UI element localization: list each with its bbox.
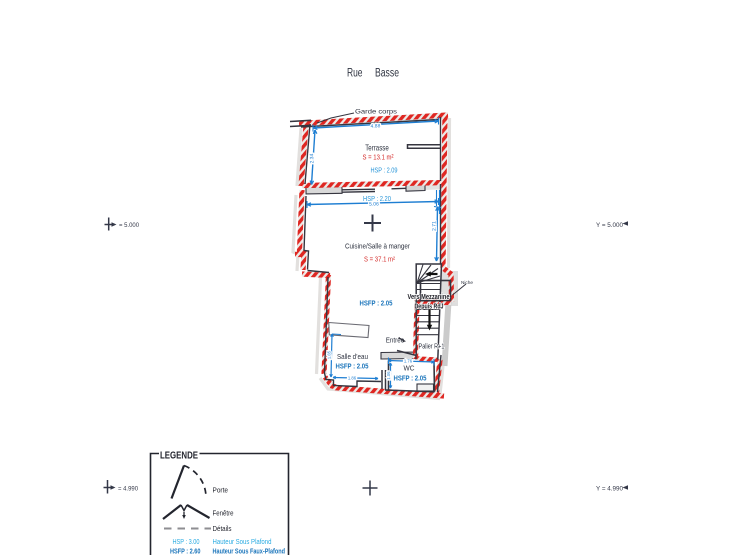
svg-text:Hauteur Sous Faux-Plafond: Hauteur Sous Faux-Plafond xyxy=(213,549,286,555)
svg-text:= 4.990: = 4.990 xyxy=(118,487,139,493)
svg-text:HSP : 2.09: HSP : 2.09 xyxy=(371,166,398,175)
svg-text:Terrasse: Terrasse xyxy=(365,144,389,153)
svg-text:Garde corps: Garde corps xyxy=(355,109,398,116)
svg-text:Y = 5.000: Y = 5.000 xyxy=(596,223,624,229)
svg-text:Rue: Rue xyxy=(347,68,363,80)
svg-text:Fenêtre: Fenêtre xyxy=(213,509,234,518)
svg-text:HSFP : 2.05: HSFP : 2.05 xyxy=(394,374,427,383)
svg-text:Hauteur Sous Plafond: Hauteur Sous Plafond xyxy=(213,539,272,546)
svg-text:HSP : 3.00: HSP : 3.00 xyxy=(173,539,200,546)
svg-text:S = 37.1 m²: S = 37.1 m² xyxy=(364,255,395,264)
svg-text:Entrée: Entrée xyxy=(386,336,405,345)
svg-text:WC: WC xyxy=(404,364,415,373)
svg-text:S = 13.1 m²: S = 13.1 m² xyxy=(363,153,394,162)
svg-text:= 5.000: = 5.000 xyxy=(119,223,140,229)
svg-text:LEGENDE: LEGENDE xyxy=(160,450,198,462)
svg-text:Porte: Porte xyxy=(213,486,229,495)
svg-text:Cuisine/Salle à manger: Cuisine/Salle à manger xyxy=(345,242,410,251)
svg-text:Y = 4.990: Y = 4.990 xyxy=(596,487,624,493)
svg-text:1.85: 1.85 xyxy=(326,350,331,359)
svg-text:2.34: 2.34 xyxy=(309,153,316,163)
svg-text:HSFP : 2.05: HSFP : 2.05 xyxy=(360,299,394,308)
svg-text:HSFP : 2.60: HSFP : 2.60 xyxy=(170,549,201,555)
svg-text:HSFP : 2.05: HSFP : 2.05 xyxy=(336,362,369,371)
svg-text:Détails: Détails xyxy=(213,524,232,533)
svg-text:Basse: Basse xyxy=(375,68,399,80)
svg-text:Palier R+1: Palier R+1 xyxy=(419,342,445,351)
svg-text:Vers Mezzanine: Vers Mezzanine xyxy=(408,294,450,301)
svg-text:Niche: Niche xyxy=(461,280,473,286)
svg-text:HSP : 2.20: HSP : 2.20 xyxy=(363,194,391,203)
svg-text:4.88: 4.88 xyxy=(370,123,380,130)
svg-text:1.86: 1.86 xyxy=(348,376,357,381)
svg-text:Depuis RdJ: Depuis RdJ xyxy=(415,304,444,311)
svg-text:Salle d’eau: Salle d’eau xyxy=(337,352,368,361)
svg-text:2.71: 2.71 xyxy=(431,221,437,231)
svg-text:1.06: 1.06 xyxy=(386,371,391,380)
